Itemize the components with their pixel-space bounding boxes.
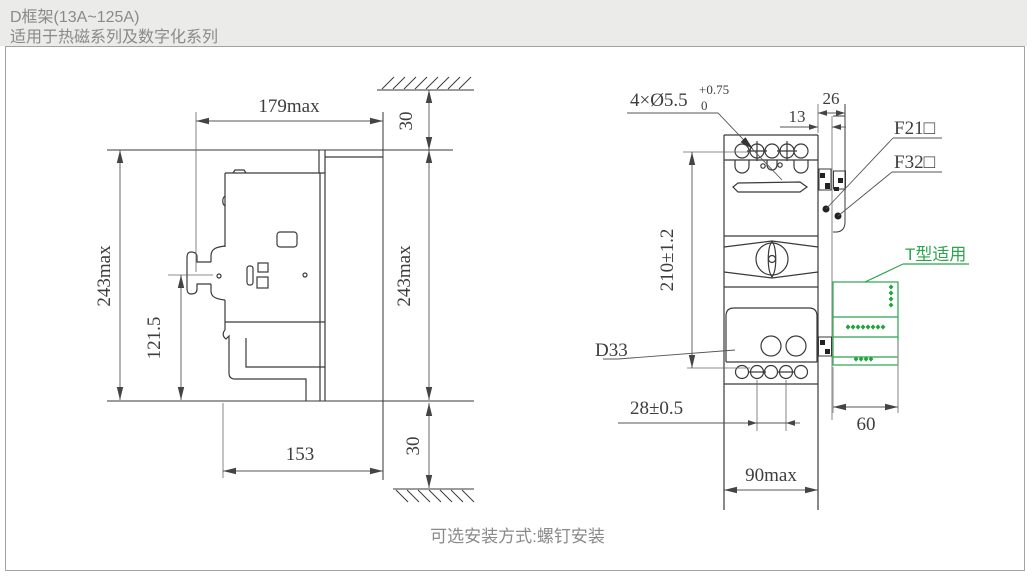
terminal-dots	[846, 284, 894, 361]
dim-hole-spacing: 28±0.5	[630, 398, 683, 419]
dimension-drawing-page: D框架(13A~125A) 适用于热磁系列及数字化系列	[0, 0, 1035, 578]
t-type-accessory	[833, 264, 969, 365]
dim-bottom-clearance: 30	[403, 437, 424, 456]
mounting-clip-bottom	[819, 337, 832, 356]
front-view-labels: 4×Ø5.5 +0.75 0 F21□ F32□ D33	[595, 82, 942, 361]
dim-height-right: 243max	[394, 245, 415, 307]
side-accessory	[819, 104, 846, 420]
technical-drawing: 179max 30 243max 121.5 153 243max 30	[0, 0, 1035, 578]
dim-offset: 13	[789, 107, 806, 126]
breaker-side-body	[187, 150, 383, 401]
holes-tolerance-lower: 0	[701, 98, 708, 113]
floor-hatch	[393, 489, 474, 502]
label-mounting-holes: 4×Ø5.5	[630, 90, 688, 111]
front-view-dimensions: 26 13 210±1.2 28±0.5 90max 60	[618, 89, 898, 490]
dim-height: 210±1.2	[657, 229, 678, 292]
label-d33: D33	[595, 340, 628, 361]
dim-rail: 26	[823, 89, 840, 108]
side-view: 179max 30 243max 121.5 153 243max 30	[94, 77, 474, 502]
ceiling-hatch	[377, 77, 474, 90]
dim-height-left: 243max	[94, 245, 115, 307]
breaker-front-body	[724, 135, 818, 510]
dim-accessory-width: 60	[857, 414, 876, 435]
dim-depth: 153	[286, 444, 315, 465]
front-view: T型适用 4×Ø5.5 +0.75 0 F21□ F32□ D33	[595, 82, 969, 510]
holes-tolerance-upper: +0.75	[699, 82, 729, 97]
dim-width-max: 179max	[258, 96, 320, 117]
dim-front-width: 90max	[745, 465, 797, 486]
dim-handle-center: 121.5	[144, 317, 165, 360]
label-f21: F21□	[894, 118, 936, 139]
dim-top-clearance: 30	[396, 112, 417, 131]
label-t-type: T型适用	[905, 245, 966, 264]
label-f32: F32□	[894, 152, 936, 173]
mounting-caption: 可选安装方式:螺钉安装	[0, 522, 1035, 547]
